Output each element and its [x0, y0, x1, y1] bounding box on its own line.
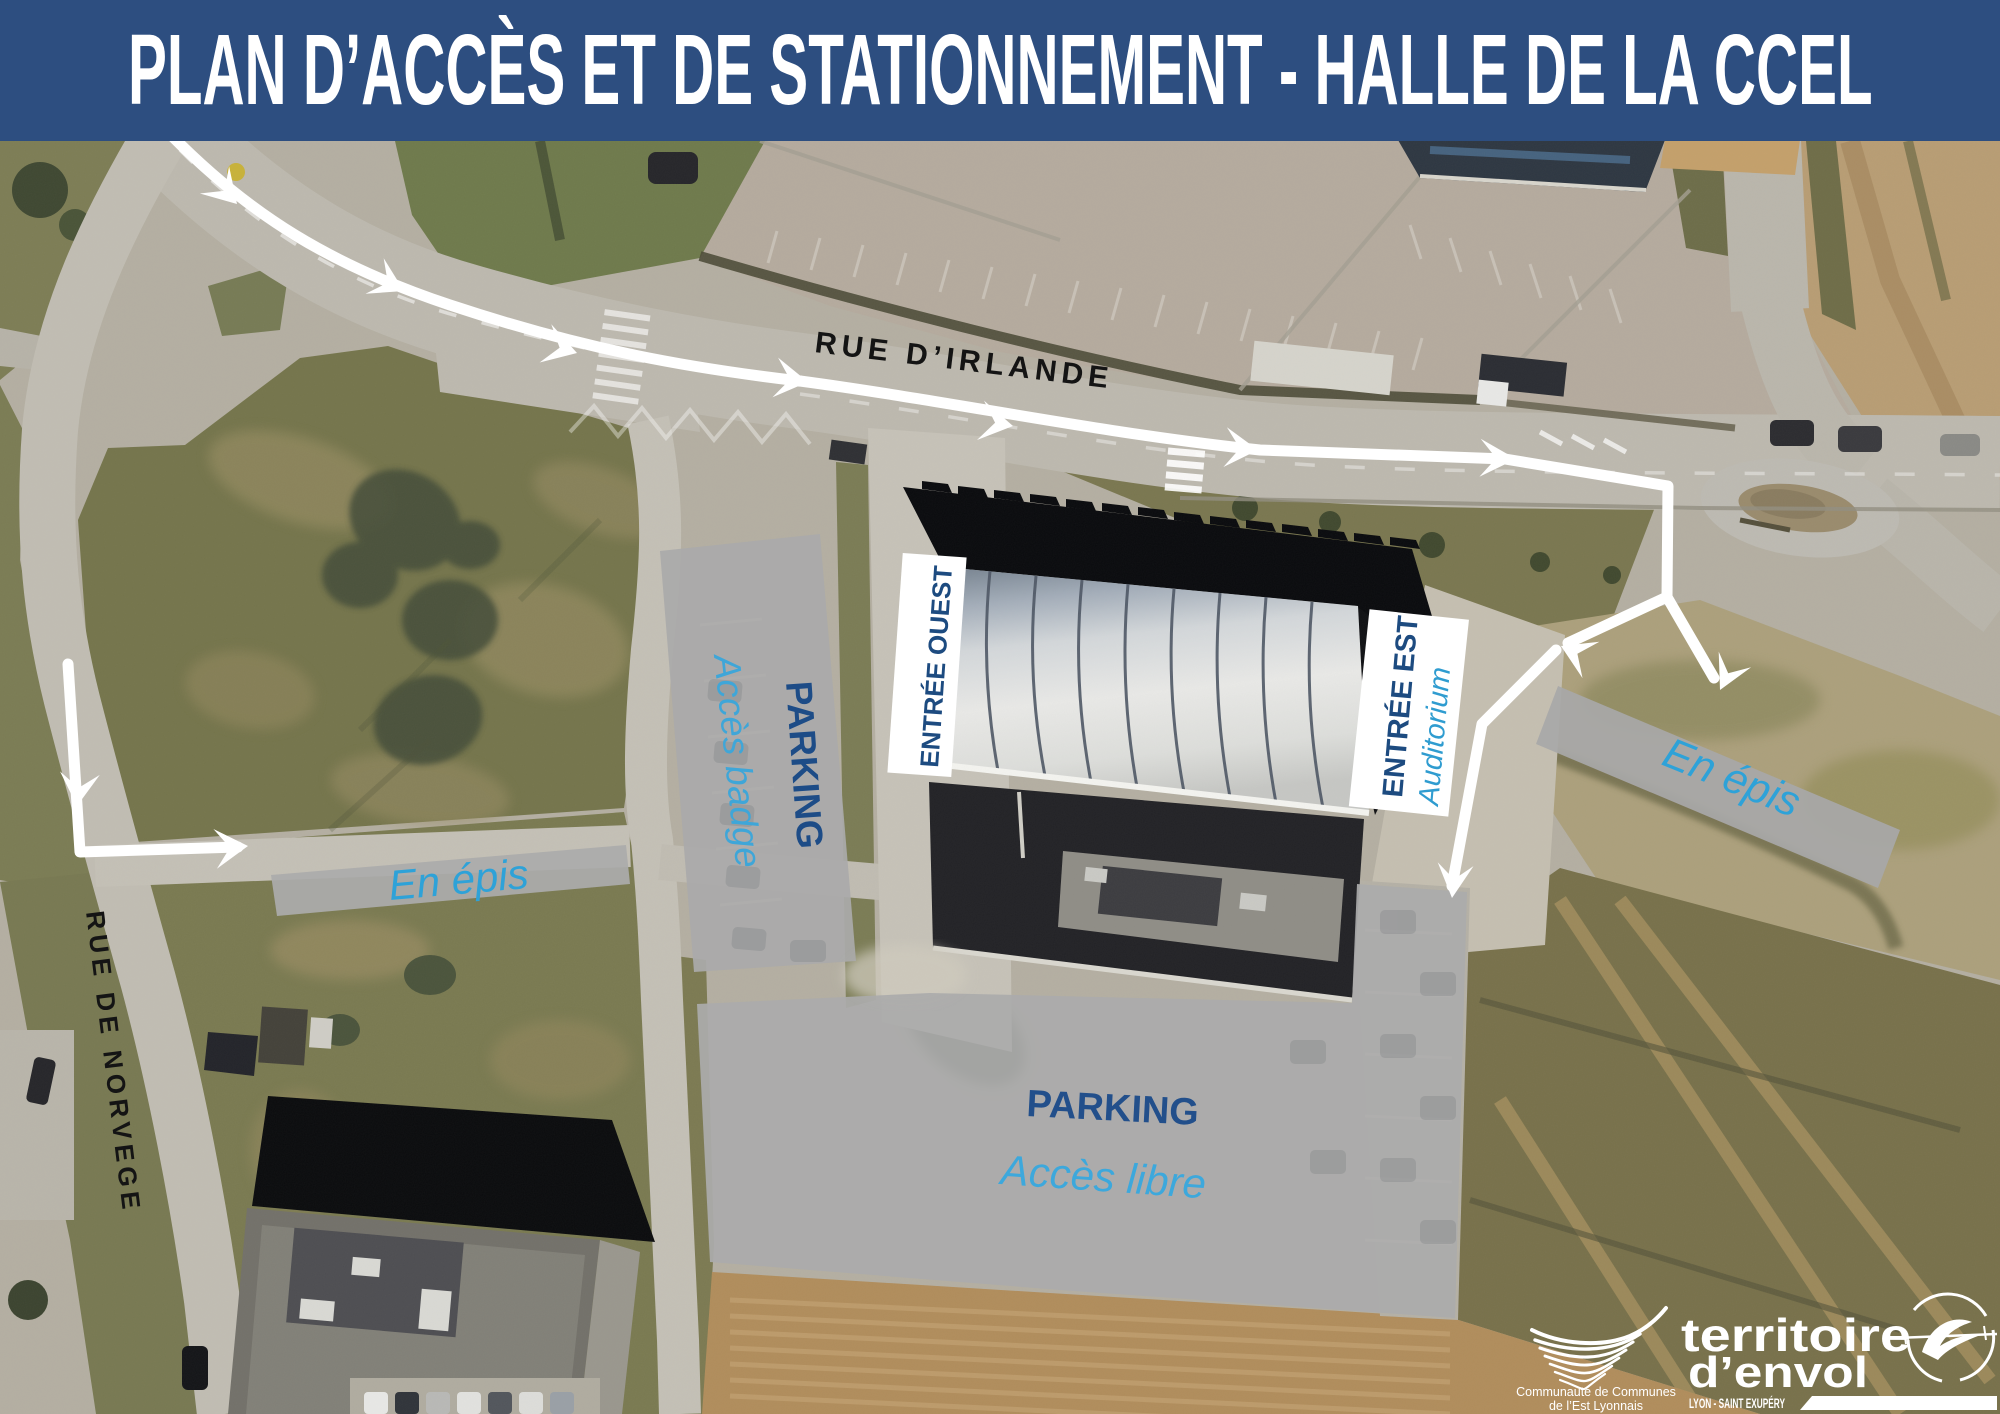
svg-text:Communauté de Communes: Communauté de Communes [1516, 1385, 1676, 1399]
svg-text:de l’Est Lyonnais: de l’Est Lyonnais [1549, 1399, 1643, 1413]
svg-text:d’envol: d’envol [1688, 1348, 1868, 1397]
svg-text:LYON - SAINT EXUPÉRY: LYON - SAINT EXUPÉRY [1689, 1396, 1785, 1411]
